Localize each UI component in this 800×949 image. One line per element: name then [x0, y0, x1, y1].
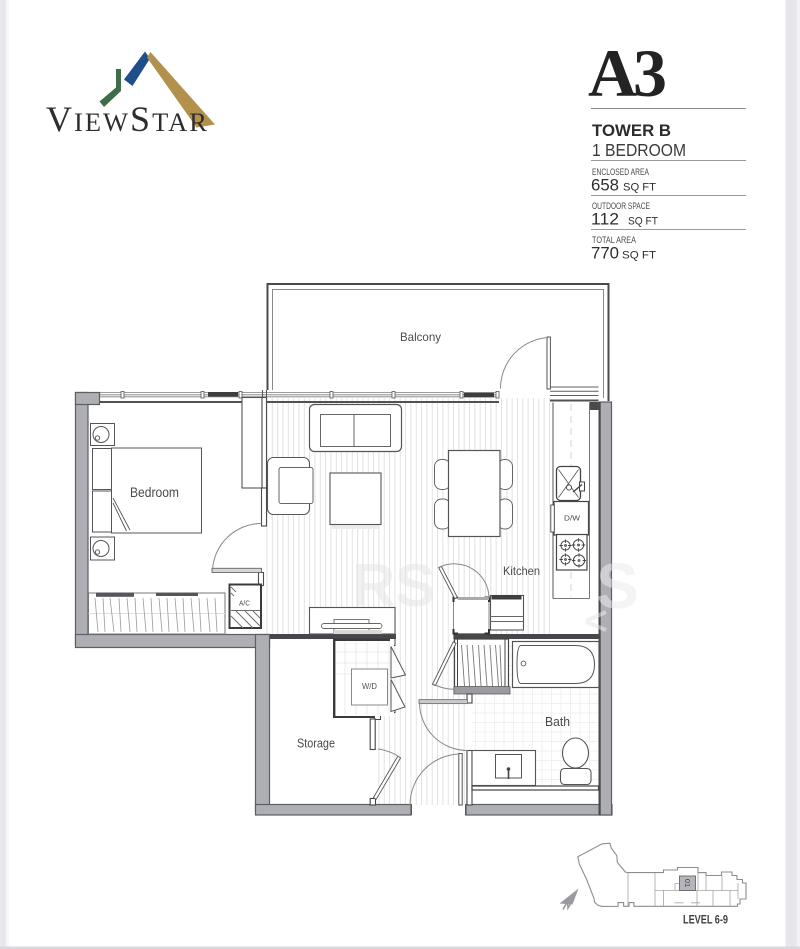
svg-text:SQ FT: SQ FT [628, 216, 658, 228]
svg-text:Storage: Storage [297, 737, 335, 751]
svg-text:01: 01 [683, 879, 692, 887]
svg-text:OUTDOOR SPACE: OUTDOOR SPACE [592, 201, 650, 211]
svg-text:SQ FT: SQ FT [622, 250, 656, 262]
svg-text:D/W: D/W [564, 514, 581, 523]
svg-text:Bath: Bath [545, 714, 570, 729]
svg-text:TOTAL AREA: TOTAL AREA [592, 235, 636, 245]
svg-text:Kitchen: Kitchen [503, 564, 540, 578]
svg-text:ENCLOSED AREA: ENCLOSED AREA [592, 167, 649, 177]
svg-text:112: 112 [591, 211, 619, 229]
svg-text:S: S [596, 550, 639, 622]
svg-text:770: 770 [591, 245, 619, 263]
svg-text:Balcony: Balcony [400, 330, 441, 344]
svg-text:658: 658 [591, 177, 619, 195]
svg-text:TOWER B: TOWER B [592, 121, 671, 140]
svg-text:W/D: W/D [362, 682, 377, 691]
svg-text:Bedroom: Bedroom [130, 484, 179, 500]
svg-text:LEVEL 6-9: LEVEL 6-9 [683, 913, 728, 927]
svg-text:A/C: A/C [239, 599, 251, 608]
svg-text:1 BEDROOM: 1 BEDROOM [592, 140, 686, 160]
svg-text:A3: A3 [588, 35, 667, 111]
svg-text:SQ FT: SQ FT [623, 182, 656, 194]
